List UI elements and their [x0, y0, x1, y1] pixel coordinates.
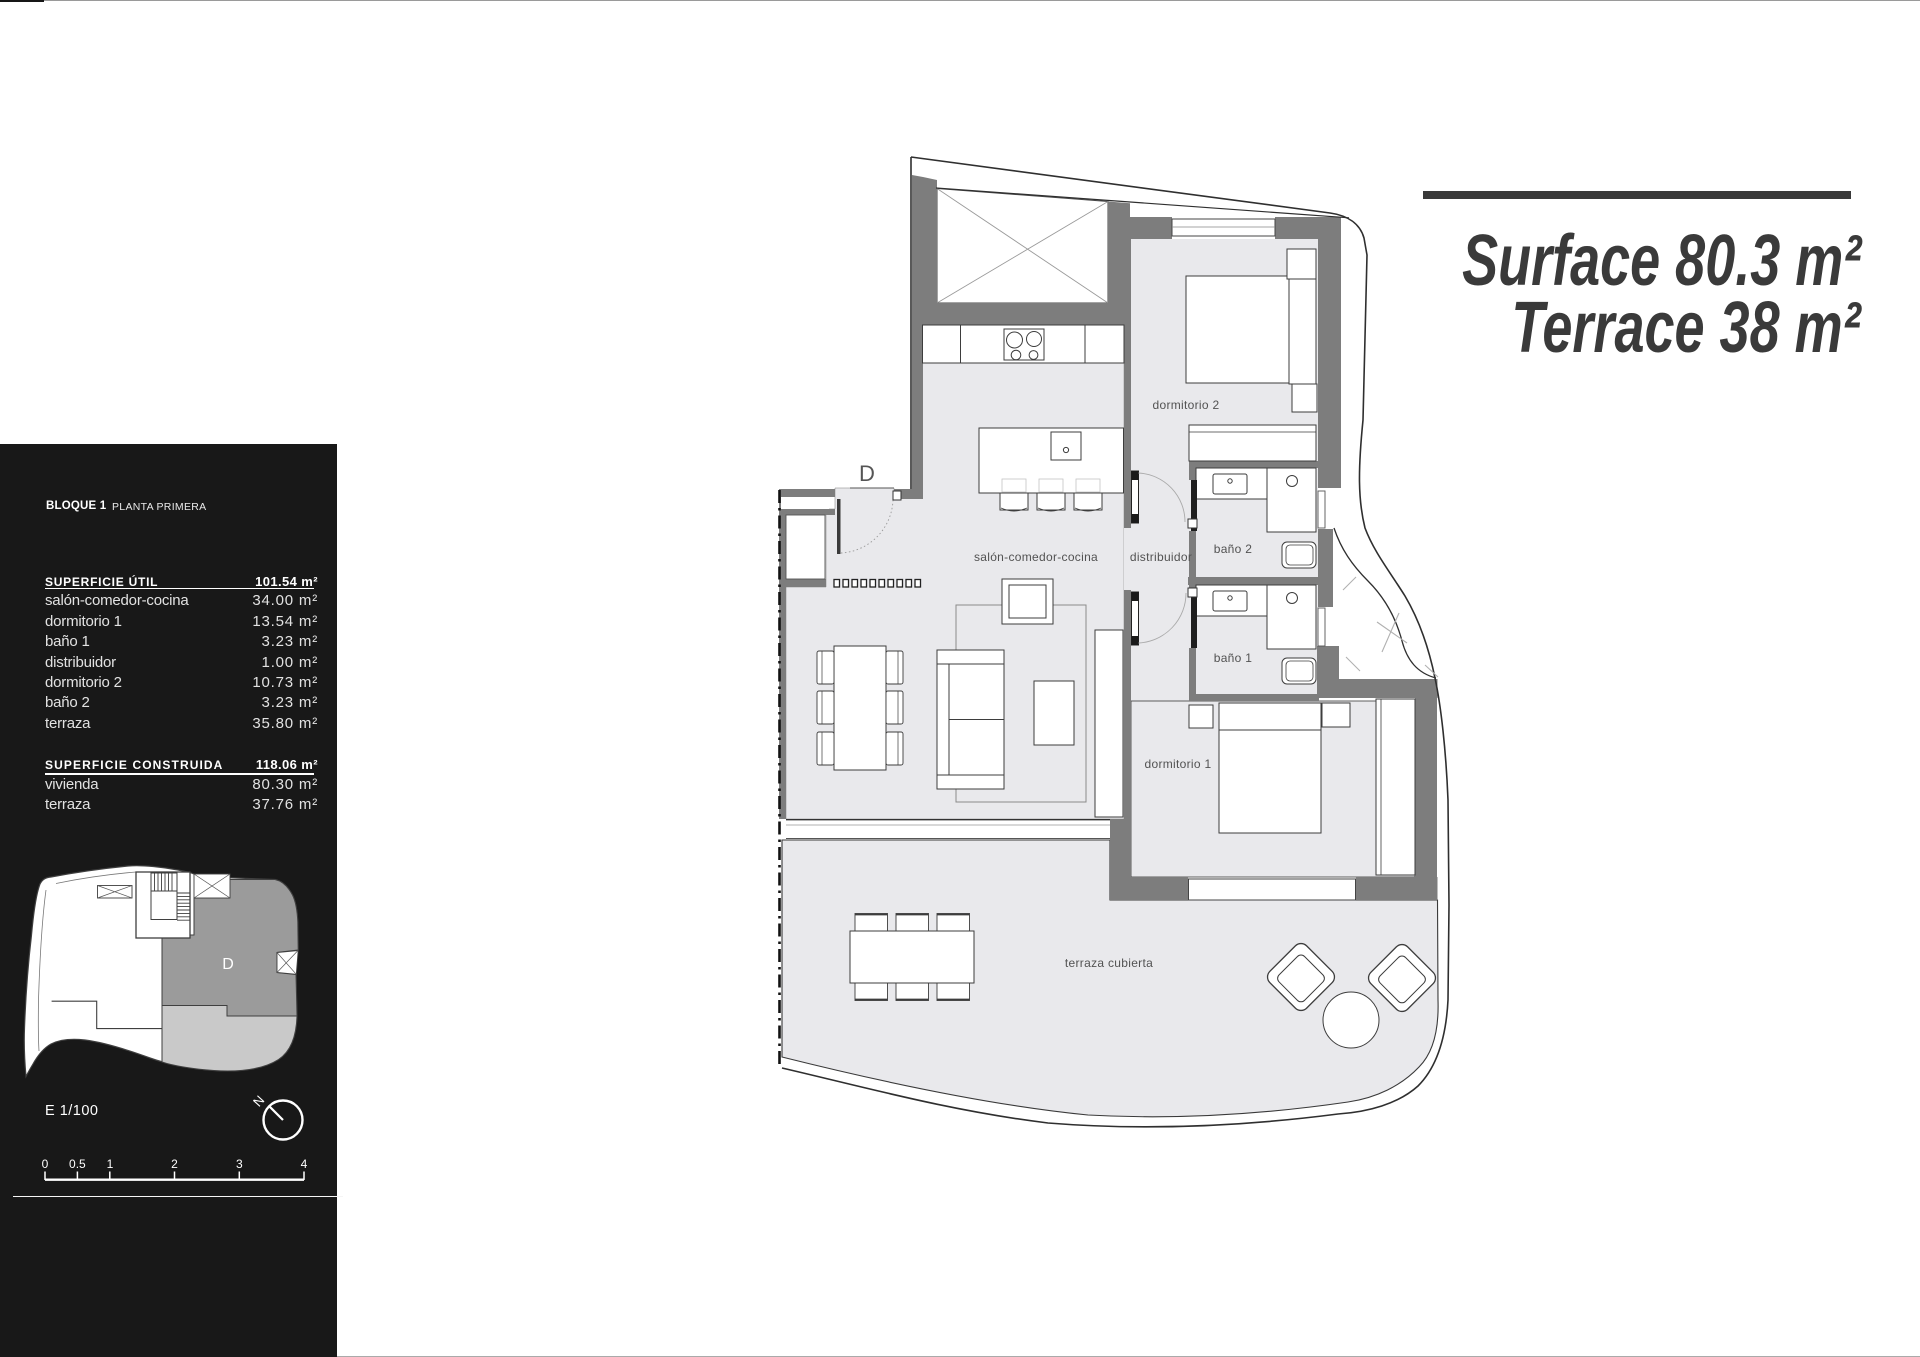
- svg-text:terraza cubierta: terraza cubierta: [1065, 956, 1153, 970]
- svg-text:dormitorio 2: dormitorio 2: [1153, 398, 1220, 412]
- svg-text:salón-comedor-cocina: salón-comedor-cocina: [974, 550, 1098, 564]
- svg-text:dormitorio 1: dormitorio 1: [1145, 757, 1212, 771]
- svg-text:D: D: [859, 461, 875, 486]
- svg-text:distribuidor: distribuidor: [1130, 550, 1192, 564]
- svg-text:baño 2: baño 2: [1214, 542, 1253, 556]
- svg-text:baño 1: baño 1: [1214, 651, 1253, 665]
